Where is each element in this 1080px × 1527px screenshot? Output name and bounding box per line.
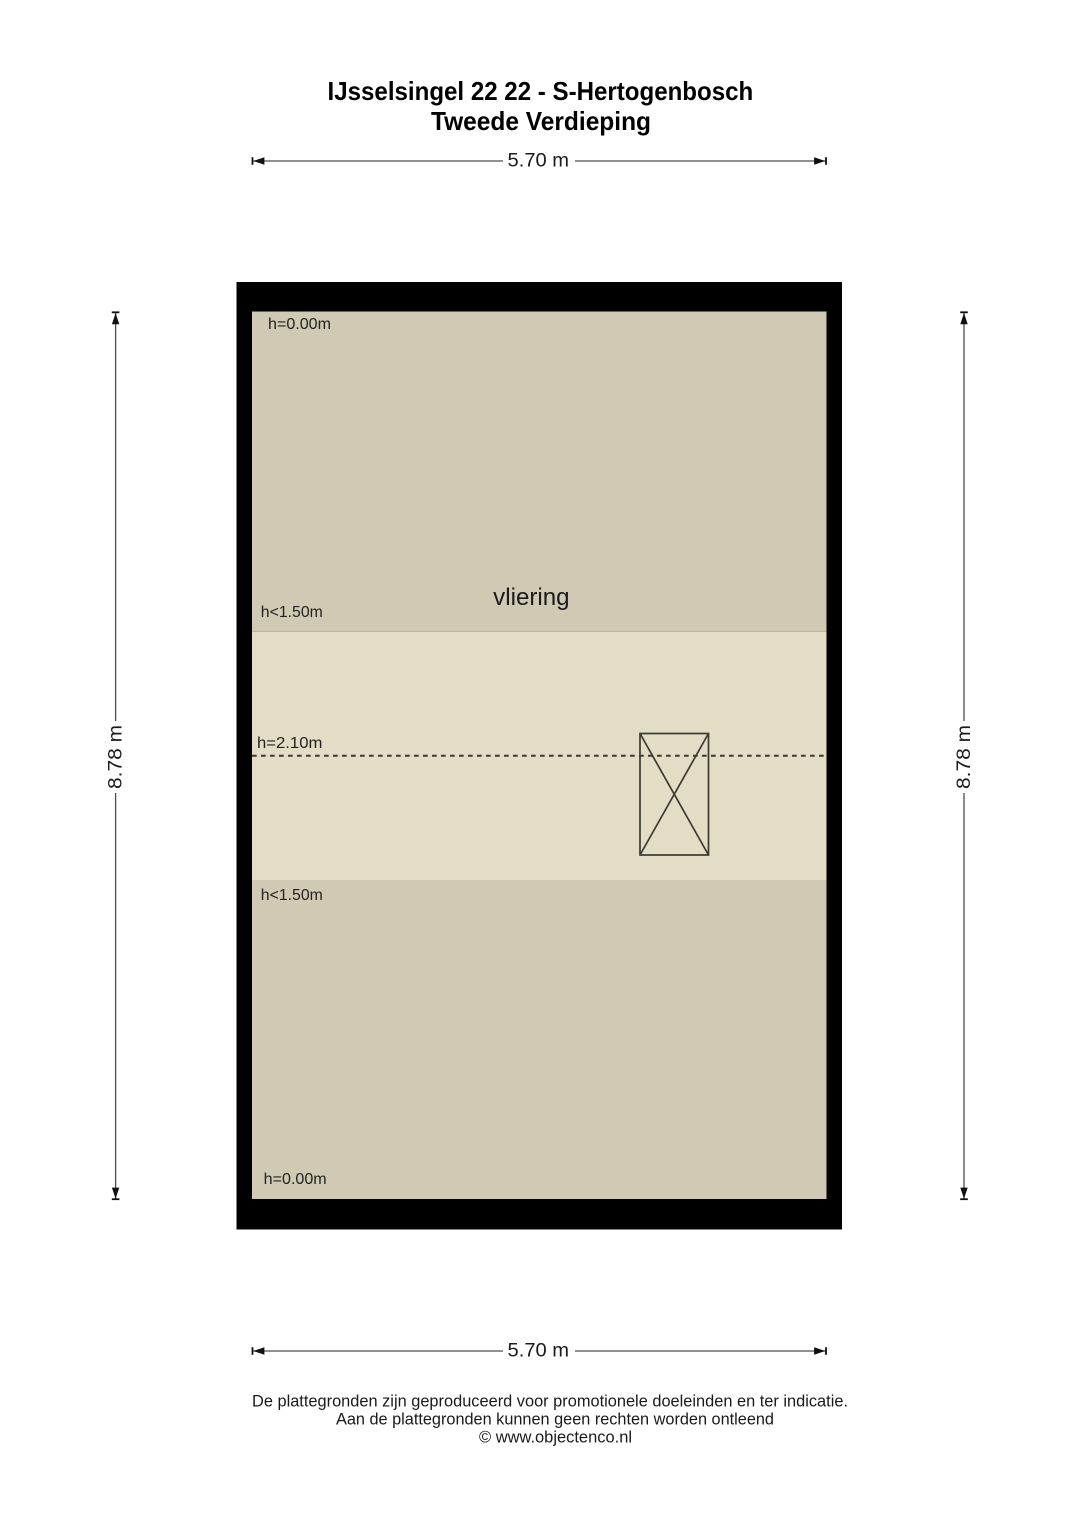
svg-text:8.78 m: 8.78 m <box>954 725 975 789</box>
svg-text:© www.objectenco.nl: © www.objectenco.nl <box>479 1428 632 1447</box>
svg-text:h=2.10m: h=2.10m <box>257 735 322 752</box>
svg-text:Tweede Verdieping: Tweede Verdieping <box>431 106 651 136</box>
svg-text:vliering: vliering <box>493 584 569 611</box>
svg-text:h=0.00m: h=0.00m <box>264 1171 327 1188</box>
svg-text:5.70 m: 5.70 m <box>508 151 570 172</box>
svg-text:h<1.50m: h<1.50m <box>261 604 323 621</box>
svg-text:h<1.50m: h<1.50m <box>261 887 323 904</box>
svg-text:IJsselsingel 22 22 - S-Hertoge: IJsselsingel 22 22 - S-Hertogenbosch <box>328 76 754 106</box>
svg-text:Aan de plattegronden kunnen ge: Aan de plattegronden kunnen geen rechten… <box>336 1410 774 1429</box>
svg-text:h=0.00m: h=0.00m <box>268 316 331 333</box>
svg-text:8.78 m: 8.78 m <box>106 725 127 789</box>
svg-text:De plattegronden zijn geproduc: De plattegronden zijn geproduceerd voor … <box>252 1392 848 1411</box>
svg-text:5.70 m: 5.70 m <box>508 1341 570 1362</box>
